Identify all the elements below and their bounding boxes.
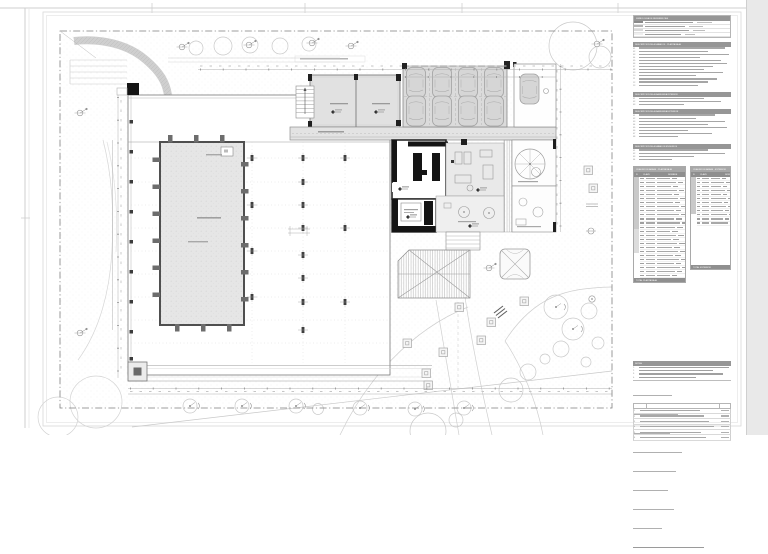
abbreviation-line (633, 478, 731, 496)
text-line (657, 251, 678, 252)
text-line (679, 243, 684, 244)
text-line (646, 190, 655, 191)
text-line (640, 426, 714, 427)
hall-label (206, 154, 222, 155)
corner-column (127, 83, 139, 95)
text-line (725, 210, 729, 211)
text-line (657, 198, 677, 199)
text-line (657, 202, 672, 203)
text-line (639, 127, 727, 128)
revision-row: 6 (633, 435, 731, 440)
note-number: 02 (633, 152, 635, 154)
note-number: 02 (633, 117, 635, 119)
text-line (639, 75, 696, 76)
walkway-label (318, 131, 344, 133)
text-line (633, 528, 662, 529)
text-line (640, 263, 645, 264)
closing-line (633, 535, 731, 553)
text-line (677, 227, 682, 228)
table-row (640, 274, 686, 278)
legend-row (634, 33, 730, 37)
column-header: NOMBRE (725, 173, 731, 175)
text-line (646, 206, 655, 207)
note-number: 01 (633, 114, 635, 116)
notes-section: DESCRIPCION DE ACABADOS EN MUROS01020304 (633, 144, 731, 161)
text-line (697, 186, 700, 187)
text-line (639, 98, 704, 99)
text-line (729, 214, 730, 215)
text-line (674, 194, 679, 195)
legend-swatch (634, 21, 643, 23)
text-line (657, 222, 680, 223)
text-line (678, 235, 683, 236)
text-line (633, 547, 704, 548)
text-line (646, 275, 655, 276)
text-line (711, 206, 727, 207)
text-line (657, 275, 670, 276)
text-line (679, 190, 684, 191)
note-line-row: 08 (633, 135, 731, 138)
notes-section: DESCRIPCION DE ACABADOS · PLANTA BAJA010… (633, 42, 731, 87)
text-line (697, 222, 700, 223)
text-line (676, 218, 681, 219)
terrace (446, 143, 504, 196)
revision-number: 3 (634, 420, 636, 422)
text-line (639, 72, 723, 73)
text-line (697, 194, 700, 195)
text-line (640, 255, 645, 256)
text-line (646, 194, 655, 195)
text-line (697, 206, 700, 207)
text-line (639, 130, 688, 131)
text-line (646, 235, 655, 236)
text-line (640, 410, 700, 411)
abbreviation-line (633, 459, 731, 477)
text-line (646, 186, 655, 187)
text-line (639, 104, 684, 105)
note-number: 12 (633, 81, 635, 83)
courtyard (436, 196, 504, 232)
text-line (640, 259, 645, 260)
text-line (680, 198, 685, 199)
text-line (702, 206, 709, 207)
column-header: NOMBRE (668, 173, 677, 175)
text-line (677, 271, 682, 272)
text-line (640, 202, 645, 203)
group-strip (634, 177, 639, 253)
legend-block: SIMBOLOGIA DE REFERENCIAS (633, 15, 731, 38)
text-line (633, 509, 674, 510)
abbreviation-line (633, 497, 731, 515)
boxed-tree (500, 249, 530, 279)
text-line (640, 190, 645, 191)
text-line (639, 63, 727, 64)
driveway (514, 64, 556, 127)
text-line (672, 231, 677, 232)
text-line (657, 178, 670, 179)
text-line (673, 186, 678, 187)
table-footer: TOTAL PLANTA BAJA (634, 278, 685, 282)
text-line (657, 259, 679, 260)
text-line (633, 452, 682, 453)
legend-swatch (634, 25, 643, 27)
text-line (723, 186, 727, 187)
drawing-sheet: { "document": { "type": "architectural-s… (0, 0, 768, 435)
text-line (724, 202, 728, 203)
text-line (711, 222, 728, 223)
text-line (639, 159, 672, 160)
text-line (657, 235, 676, 236)
text-line (726, 182, 730, 183)
text-line (711, 202, 722, 203)
main-hall (153, 135, 249, 332)
text-line (722, 178, 726, 179)
note-number: 06 (633, 62, 635, 64)
note-number: 04 (633, 56, 635, 58)
text-line (657, 239, 671, 240)
text-line (725, 218, 729, 219)
note-number: 04 (633, 123, 635, 125)
text-line (697, 178, 700, 179)
text-line (639, 78, 717, 79)
note-number: 01 (633, 47, 635, 49)
column-header: CLAVE (700, 173, 707, 175)
text-line (640, 239, 645, 240)
text-line (639, 118, 696, 119)
text-line (697, 202, 700, 203)
hall-label (188, 241, 208, 242)
stairwell-nw (296, 86, 314, 118)
text-line (702, 194, 709, 195)
area-table: CUADRO DE AREAS · PLANTA BAJANCLAVENOMBR… (633, 166, 686, 283)
column-header: N (693, 173, 695, 175)
text-line (657, 247, 672, 248)
group-strip (691, 177, 696, 214)
note-number: 07 (633, 66, 635, 68)
notes-panel: SIMBOLOGIA DE REFERENCIAS DESCRIPCION DE… (633, 14, 731, 435)
text-line (680, 251, 685, 252)
text-line (728, 206, 730, 207)
notes-section: DESCRIPCION DE ALBANILERIA EXTERIOR01020… (633, 109, 731, 139)
text-line (640, 231, 645, 232)
text-line (639, 60, 721, 61)
text-line (697, 190, 700, 191)
text-line (639, 69, 704, 70)
text-line (639, 373, 723, 374)
text-line (633, 471, 676, 472)
text-line (657, 231, 670, 232)
legend-swatch (634, 29, 643, 31)
text-line (639, 81, 708, 82)
text-line (646, 239, 655, 240)
text-line (640, 198, 645, 199)
text-line (657, 214, 679, 215)
revision-date (721, 415, 729, 416)
text-line (640, 247, 645, 248)
text-line (646, 247, 655, 248)
text-line (697, 218, 700, 219)
divider (633, 380, 731, 381)
room-label (372, 103, 390, 104)
note-number: 08 (633, 69, 635, 71)
note-number: 03 (633, 53, 635, 55)
text-line (682, 267, 685, 268)
text-line (681, 259, 685, 260)
legend-swatch (634, 33, 643, 35)
text-line (646, 222, 655, 223)
text-line (640, 415, 704, 416)
table-footer: TOTAL EXTERIOR (691, 265, 730, 269)
text-line (639, 370, 713, 371)
page-margin (746, 0, 768, 435)
text-line (633, 490, 668, 491)
note-line-row: 13 (633, 84, 731, 87)
text-line (640, 194, 645, 195)
text-line (646, 218, 655, 219)
note-number: 07 (633, 133, 635, 135)
text-line (676, 210, 681, 211)
note-line-row: 04 (633, 158, 731, 161)
text-line (702, 222, 709, 223)
text-line (646, 214, 655, 215)
core-room-lower (392, 199, 436, 232)
hall-label (197, 217, 221, 219)
text-line (639, 149, 708, 150)
note-number: 05 (633, 59, 635, 61)
walkway (290, 127, 556, 140)
text-line (681, 214, 685, 215)
notes-section: DESCRIPCION DE ALBANILERIA INTERIOR01020… (633, 92, 731, 106)
note-number: 13 (633, 84, 635, 86)
spiral-room (515, 149, 545, 179)
text-line (702, 182, 709, 183)
revision-number: 2 (634, 415, 636, 417)
text-line (702, 186, 709, 187)
text-line (639, 85, 698, 86)
text-line (645, 22, 693, 23)
note-number: 02 (633, 101, 635, 103)
text-line (657, 190, 677, 191)
text-line (711, 218, 724, 219)
note-number: 03 (633, 104, 635, 106)
text-line (646, 182, 655, 183)
column-header: N (636, 173, 638, 175)
text-line (640, 421, 709, 422)
text-line (639, 101, 721, 102)
text-line (678, 182, 683, 183)
text-line (702, 190, 709, 191)
note-number: 08 (633, 136, 635, 138)
column-header: CLAVE (643, 173, 650, 175)
text-line (657, 263, 674, 264)
text-line (633, 395, 672, 396)
area-table: CUADRO DE AREAS · EXTERIORNCLAVENOMBREAR… (690, 166, 731, 270)
text-line (639, 47, 725, 48)
text-line (639, 377, 696, 378)
text-line (640, 218, 645, 219)
text-line (697, 198, 700, 199)
text-line (639, 114, 715, 115)
text-line (640, 243, 645, 244)
text-line (676, 263, 681, 264)
text-line (640, 275, 645, 276)
text-line (711, 190, 725, 191)
text-line (697, 210, 700, 211)
room-label (518, 181, 538, 182)
text-line (646, 271, 655, 272)
text-line (711, 178, 720, 179)
text-line (702, 202, 709, 203)
table-empty-rows (691, 226, 730, 266)
revision-number: 4 (634, 426, 636, 428)
revision-number: 6 (634, 436, 636, 438)
text-line (711, 182, 725, 183)
text-line (657, 267, 680, 268)
text-line (675, 202, 680, 203)
revision-date (721, 432, 729, 433)
text-line (702, 198, 709, 199)
text-line (657, 206, 678, 207)
text-line (639, 121, 725, 122)
text-line (728, 198, 730, 199)
text-line (645, 30, 689, 31)
text-line (689, 26, 702, 27)
abbreviation-line (633, 383, 731, 401)
parking-area (402, 61, 556, 127)
text-line (685, 34, 695, 35)
note-number: 04 (633, 158, 635, 160)
text-line (646, 210, 655, 211)
text-line (702, 218, 709, 219)
text-line (672, 178, 677, 179)
text-line (657, 271, 675, 272)
south-stair (446, 232, 480, 250)
text-line (646, 243, 655, 244)
text-line (646, 227, 655, 228)
revision-date (721, 410, 729, 411)
note-number: 02 (633, 50, 635, 52)
text-line (640, 222, 645, 223)
text-line (723, 194, 727, 195)
text-line (674, 247, 679, 248)
text-line (711, 194, 722, 195)
text-line (639, 133, 712, 134)
note-line-row: 4. (633, 376, 731, 379)
text-line (639, 156, 694, 157)
text-line (702, 178, 709, 179)
text-line (711, 186, 721, 187)
text-line (657, 255, 673, 256)
note-line-row: 03 (633, 103, 731, 106)
text-line (640, 178, 645, 179)
text-line (645, 34, 681, 35)
text-line (681, 206, 685, 207)
note-number: 03 (633, 120, 635, 122)
text-line (640, 271, 645, 272)
text-line (640, 437, 706, 438)
revision-date (721, 426, 729, 427)
note-number: 06 (633, 129, 635, 131)
text-line (640, 432, 701, 433)
text-line (657, 186, 671, 187)
text-line (702, 210, 709, 211)
text-line (640, 182, 645, 183)
text-line (657, 243, 677, 244)
text-line (693, 30, 705, 31)
text-line (640, 206, 645, 207)
text-line (639, 66, 713, 67)
text-line (657, 194, 672, 195)
text-line (657, 218, 674, 219)
text-line (657, 227, 675, 228)
text-line (639, 153, 725, 154)
text-line (646, 251, 655, 252)
text-line (640, 267, 645, 268)
text-line (697, 214, 700, 215)
text-line (639, 367, 729, 368)
text-line (675, 255, 680, 256)
upper-rooms (296, 74, 401, 127)
text-line (646, 198, 655, 199)
note-number: 03 (633, 155, 635, 157)
text-line (640, 214, 645, 215)
abbreviation-line (633, 516, 731, 534)
text-line (646, 259, 655, 260)
text-line (711, 210, 723, 211)
text-line (639, 54, 729, 55)
text-line (639, 57, 700, 58)
text-line (682, 222, 685, 223)
table-body (691, 177, 730, 265)
text-line (639, 124, 708, 125)
text-line (711, 214, 727, 215)
abbreviation-line (633, 440, 731, 458)
text-line (639, 136, 678, 137)
text-line (711, 198, 726, 199)
text-line (657, 182, 676, 183)
table-body (634, 177, 685, 278)
revision-number: 5 (634, 431, 636, 433)
text-line (697, 182, 700, 183)
text-line (640, 251, 645, 252)
text-line (646, 202, 655, 203)
text-line (640, 186, 645, 187)
text-line (673, 239, 678, 240)
text-line (640, 210, 645, 211)
text-line (645, 26, 685, 27)
note-number: 01 (633, 97, 635, 99)
text-line (702, 214, 709, 215)
text-line (640, 235, 645, 236)
note-number: 01 (633, 149, 635, 151)
notes-block: NOTAS 1.2.3.4. (633, 361, 731, 554)
text-line (646, 263, 655, 264)
text-line (646, 255, 655, 256)
text-line (727, 190, 730, 191)
room-label (517, 226, 541, 227)
text-line (697, 22, 712, 23)
text-line (646, 231, 655, 232)
text-line (639, 51, 708, 52)
revision-number: 1 (634, 410, 636, 412)
text-line (672, 275, 677, 276)
text-line (646, 267, 655, 268)
revision-date (721, 437, 729, 438)
room-label (330, 103, 348, 104)
note-number: 05 (633, 126, 635, 128)
text-line (657, 210, 673, 211)
revision-date (721, 421, 729, 422)
